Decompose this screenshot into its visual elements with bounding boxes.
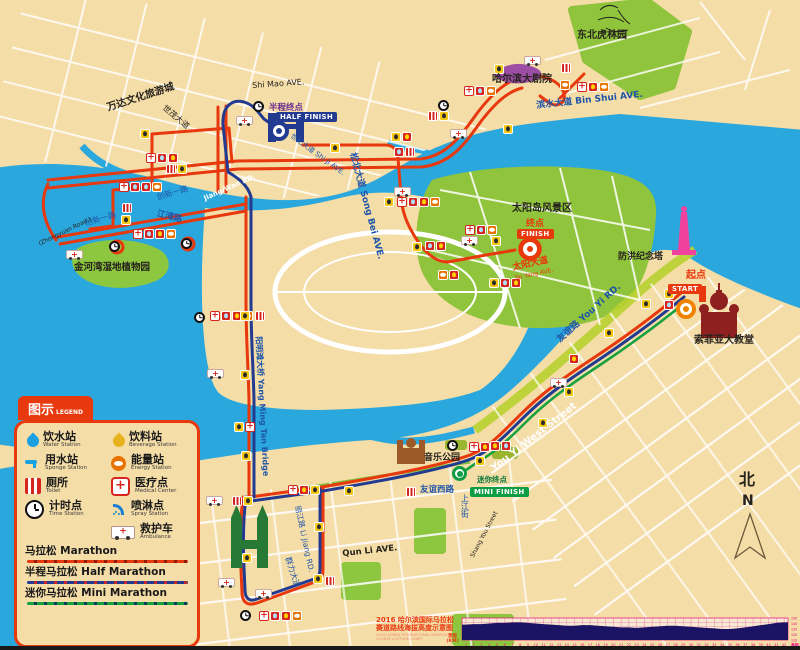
route-label-en: Mini Marathon xyxy=(81,587,167,599)
compass-north-en: N xyxy=(742,494,754,509)
route-label-cn: 马拉松 xyxy=(25,545,57,557)
toilet-icon xyxy=(406,487,416,497)
sponge-station-icon xyxy=(412,242,422,252)
water-station-icon xyxy=(270,611,280,621)
map-label-youyi-west-rd: 友谊西路 xyxy=(420,486,454,495)
sponge-station-icon xyxy=(489,278,499,288)
sponge-station-icon xyxy=(391,132,401,142)
water-station-icon xyxy=(475,86,485,96)
legend-label: 医疗点 xyxy=(135,477,176,488)
beverage-station-icon xyxy=(436,241,446,251)
ambulance-icon xyxy=(207,369,224,378)
map-label-tiger-park: 东北虎林园 xyxy=(577,31,627,42)
energy-icon xyxy=(111,456,126,471)
music-park-building xyxy=(397,438,425,464)
station-icons xyxy=(384,197,395,207)
park-block xyxy=(414,508,446,554)
station-icons xyxy=(428,111,450,121)
start-node xyxy=(676,299,696,319)
station-icons xyxy=(641,299,652,309)
beverage-station-icon xyxy=(449,270,459,280)
ambulance-icon xyxy=(550,378,567,387)
legend-sublabel: Time Station xyxy=(49,511,84,518)
ambulance-icon xyxy=(206,496,223,505)
station-icons xyxy=(464,86,497,96)
station-icons xyxy=(140,129,151,139)
station-icons xyxy=(259,611,303,621)
beverage-station-icon xyxy=(588,82,598,92)
beverage-station-icon xyxy=(299,485,309,495)
beverage-station-icon xyxy=(569,354,579,364)
water-station-icon xyxy=(157,153,167,163)
water-station-icon xyxy=(130,182,140,192)
medical-icon xyxy=(397,197,407,207)
sponge-station-icon xyxy=(242,553,252,563)
legend-item-time: 计时点Time Station xyxy=(25,498,109,520)
station-icons xyxy=(232,496,254,506)
station-icons xyxy=(313,574,324,584)
medical-icon xyxy=(210,311,220,321)
station-icons xyxy=(465,225,498,235)
station-icons xyxy=(119,182,163,192)
medical-icon xyxy=(146,153,156,163)
energy-station-icon xyxy=(430,197,440,207)
station-icons xyxy=(569,354,580,364)
svg-text:150: 150 xyxy=(791,617,797,621)
sponge-station-icon xyxy=(234,422,244,432)
energy-station-icon xyxy=(486,86,496,96)
compass-north-cn: 北 xyxy=(739,472,755,489)
water-station-icon xyxy=(141,182,151,192)
station-icons xyxy=(121,215,132,225)
ambulance-icon xyxy=(394,187,411,196)
sponge-station-icon xyxy=(177,164,187,174)
legend-label: 救护车 xyxy=(140,523,173,534)
legend-sublabel: Water Station xyxy=(43,442,81,449)
ambulance-icon xyxy=(218,578,235,587)
map-label-sophia-cathedral: 索菲亚大教堂 xyxy=(694,336,754,347)
finish-banner: FINISH xyxy=(517,229,554,239)
legend-sublabel: Beverage Station xyxy=(129,442,177,449)
beverage-station-icon xyxy=(402,132,412,142)
medical-icon xyxy=(119,182,129,192)
time-station-icon xyxy=(194,312,205,323)
energy-station-icon xyxy=(166,229,176,239)
toilet-icon xyxy=(405,147,415,157)
legend-panel: 图示LEGEND 饮水站Water Station 饮料站Beverage St… xyxy=(14,396,200,648)
station-icons xyxy=(447,440,459,451)
beverage-station-icon xyxy=(490,441,500,451)
station-icons xyxy=(218,578,236,587)
station-icons xyxy=(391,132,413,142)
legend-title-cn: 图示 xyxy=(28,403,54,418)
marathon-line xyxy=(27,560,188,564)
park-block xyxy=(341,562,381,600)
water-station-icon xyxy=(221,311,231,321)
water-station-icon xyxy=(394,147,404,157)
station-icons xyxy=(146,153,179,163)
legend-label: 厕所 xyxy=(46,477,68,488)
sponge-station-icon xyxy=(604,328,614,338)
energy-station-icon xyxy=(599,82,609,92)
legend-label: 计时点 xyxy=(49,500,84,511)
half-finish-banner: HALF FINISH xyxy=(276,112,337,122)
mini-finish-banner: MINI FINISH xyxy=(470,487,529,497)
energy-station-icon xyxy=(560,80,570,90)
medical-icon xyxy=(469,442,479,452)
station-icons xyxy=(242,553,253,563)
station-icons xyxy=(240,311,251,321)
toilet-icon xyxy=(255,311,265,321)
station-icons xyxy=(475,456,486,466)
sponge-station-icon xyxy=(314,522,324,532)
svg-text:140: 140 xyxy=(791,622,797,626)
station-icons xyxy=(491,236,502,246)
station-icons xyxy=(253,101,265,112)
ambulance-icon xyxy=(450,129,467,138)
legend-item-ambulance: 救护车Ambulance xyxy=(111,521,190,543)
sponge-station-icon xyxy=(121,215,131,225)
station-icons xyxy=(66,250,84,259)
bottom-border-bar xyxy=(0,646,800,650)
legend-item-medical: 医疗点Medical Center xyxy=(111,475,190,497)
station-icons xyxy=(604,328,615,338)
svg-text:110: 110 xyxy=(791,639,797,643)
legend-label: 饮料站 xyxy=(129,431,177,442)
legend-label: 饮水站 xyxy=(43,431,81,442)
water-station-icon xyxy=(476,225,486,235)
chart-x-axis-label: 里程 (KM) xyxy=(444,634,461,645)
clock-icon xyxy=(25,500,44,519)
water-station-icon xyxy=(425,241,435,251)
water-station-icon xyxy=(144,229,154,239)
legend-label: 喷淋点 xyxy=(131,500,168,511)
sponge-station-icon xyxy=(330,143,340,153)
station-icons xyxy=(438,100,450,111)
station-icons xyxy=(550,378,568,387)
medical-icon xyxy=(245,422,255,432)
station-icons xyxy=(122,203,133,213)
faucet-icon xyxy=(25,457,40,470)
marathon-course-map: 东北虎林园 哈尔滨大剧院 滨水大道 Bin Shui AVE. Shi Mao … xyxy=(0,0,800,650)
sponge-station-icon xyxy=(641,299,651,309)
medical-icon xyxy=(259,611,269,621)
station-icons xyxy=(166,164,188,174)
station-icons xyxy=(450,129,468,138)
sponge-station-icon xyxy=(503,124,513,134)
legend-route-marathon: 马拉松 Marathon xyxy=(25,545,190,563)
station-icons xyxy=(425,241,447,251)
toilet-icon xyxy=(166,164,176,174)
map-label-flood-monument: 防洪纪念塔 xyxy=(618,253,663,262)
toilet-icon xyxy=(561,63,571,73)
beverage-station-icon xyxy=(155,229,165,239)
time-station-icon xyxy=(447,440,458,451)
station-icons xyxy=(461,236,479,245)
medical-icon xyxy=(111,477,130,496)
station-icons xyxy=(109,241,121,252)
station-icons xyxy=(469,442,491,452)
legend-route-half: 半程马拉松 Half Marathon xyxy=(25,566,190,584)
time-station-icon xyxy=(253,101,264,112)
station-icons xyxy=(412,242,423,252)
sponge-station-icon xyxy=(310,485,320,495)
station-icons xyxy=(394,147,416,157)
station-icons xyxy=(236,116,254,125)
legend-item-toilet: 厕所Toilet xyxy=(25,475,109,497)
station-icons xyxy=(241,451,252,461)
map-label-mini-finish: 迷你终点 xyxy=(477,476,507,484)
station-icons xyxy=(325,576,336,586)
station-icons xyxy=(438,270,460,280)
energy-station-icon xyxy=(487,225,497,235)
toilet-icon xyxy=(428,111,438,121)
legend-label: 能量站 xyxy=(131,454,172,465)
energy-station-icon xyxy=(292,611,302,621)
station-icons xyxy=(577,82,610,92)
beverage-drop-icon xyxy=(111,433,128,450)
water-station-icon xyxy=(664,300,674,310)
legend-item-spray: 喷淋点Spray Station xyxy=(111,498,190,520)
sponge-station-icon xyxy=(313,574,323,584)
sponge-station-icon xyxy=(475,456,485,466)
station-icons xyxy=(288,485,321,495)
beverage-station-icon xyxy=(419,197,429,207)
station-icons xyxy=(394,187,412,196)
station-icons xyxy=(494,64,505,74)
route-label-en: Marathon xyxy=(60,545,117,557)
station-icons xyxy=(194,312,206,323)
medical-icon xyxy=(133,229,143,239)
toilet-icon xyxy=(122,203,132,213)
sponge-station-icon xyxy=(240,311,250,321)
time-station-icon xyxy=(438,100,449,111)
water-drop-icon xyxy=(25,433,42,450)
toilet-icon xyxy=(232,496,242,506)
beverage-station-icon xyxy=(168,153,178,163)
station-icons xyxy=(234,422,256,432)
sponge-station-icon xyxy=(494,64,504,74)
route-label-cn: 半程马拉松 xyxy=(25,566,78,578)
map-label-start: 起点 xyxy=(686,271,706,282)
map-label-shangjiang-street: 上江街 xyxy=(460,494,468,518)
beverage-station-icon xyxy=(480,442,490,452)
medical-icon xyxy=(288,485,298,495)
station-icons xyxy=(406,487,417,497)
sponge-station-icon xyxy=(384,197,394,207)
time-station-icon xyxy=(181,238,192,249)
station-icons xyxy=(240,370,251,380)
chart-subtitle-cn: 赛道路线海拔高度示意图 xyxy=(376,624,456,632)
medical-icon xyxy=(577,82,587,92)
half-finish-node xyxy=(269,121,289,141)
station-icons xyxy=(255,311,266,321)
sponge-station-icon xyxy=(243,496,253,506)
sponge-station-icon xyxy=(240,370,250,380)
route-label-cn: 迷你马拉松 xyxy=(25,587,78,599)
route-label-en: Half Marathon xyxy=(81,566,166,578)
start-banner: START xyxy=(668,284,702,294)
mini-marathon-line xyxy=(27,602,188,606)
time-station-icon xyxy=(240,610,251,621)
map-label-jinhewan-garden: 金河湾湿地植物园 xyxy=(74,263,150,273)
time-station-icon xyxy=(109,241,120,252)
station-icons xyxy=(564,387,575,397)
sponge-station-icon xyxy=(140,129,150,139)
station-icons xyxy=(255,589,273,598)
energy-station-icon xyxy=(438,270,448,280)
station-icons xyxy=(524,56,542,65)
station-icons xyxy=(314,522,325,532)
beverage-station-icon xyxy=(281,611,291,621)
ambulance-icon xyxy=(255,589,272,598)
ambulance-icon xyxy=(461,236,478,245)
station-icons xyxy=(133,229,177,239)
station-icons xyxy=(206,496,224,505)
station-icons xyxy=(181,238,193,249)
ambulance-icon xyxy=(524,56,541,65)
toilet-icon xyxy=(25,478,41,494)
legend-sublabel: Energy Station xyxy=(131,465,172,472)
legend-title: 图示LEGEND xyxy=(18,396,93,420)
station-icons xyxy=(207,369,225,378)
legend-item-beverage: 饮料站Beverage Station xyxy=(111,429,190,451)
ambulance-icon xyxy=(236,116,253,125)
medical-icon xyxy=(464,86,474,96)
legend-body: 饮水站Water Station 饮料站Beverage Station 用水站… xyxy=(14,420,200,648)
station-icons xyxy=(560,80,571,90)
legend-sublabel: Spray Station xyxy=(131,511,168,518)
station-icons xyxy=(240,610,252,621)
half-marathon-line xyxy=(27,581,188,585)
map-label-sun-island: 太阳岛风景区 xyxy=(512,204,572,215)
map-label-music-park: 音乐公园 xyxy=(424,454,460,463)
legend-label: 用水站 xyxy=(45,454,87,465)
water-station-icon xyxy=(500,278,510,288)
station-icons xyxy=(344,486,355,496)
legend-item-sponge: 用水站Sponge Station xyxy=(25,452,109,474)
legend-title-en: LEGEND xyxy=(56,409,83,416)
sponge-station-icon xyxy=(241,451,251,461)
sponge-station-icon xyxy=(564,387,574,397)
finish-node xyxy=(519,238,541,260)
map-label-grand-theatre: 哈尔滨大剧院 xyxy=(492,75,552,86)
svg-text:120: 120 xyxy=(791,633,797,637)
ambulance-icon xyxy=(111,526,135,539)
legend-sublabel: Medical Center xyxy=(135,488,176,495)
spray-icon xyxy=(111,502,126,516)
legend-sublabel: Ambulance xyxy=(140,534,173,541)
legend-item-energy: 能量站Energy Station xyxy=(111,452,190,474)
water-station-icon xyxy=(408,197,418,207)
station-icons xyxy=(561,63,572,73)
sponge-station-icon xyxy=(439,111,449,121)
legend-sublabel: Sponge Station xyxy=(45,465,87,472)
station-icons xyxy=(397,197,441,207)
station-icons xyxy=(664,300,675,310)
station-icons xyxy=(330,143,341,153)
legend-item-water: 饮水站Water Station xyxy=(25,429,109,451)
mini-finish-node xyxy=(452,466,467,481)
ambulance-icon xyxy=(66,250,83,259)
svg-text:130: 130 xyxy=(791,628,797,632)
legend-sublabel: Toilet xyxy=(46,488,68,495)
legend-spacer xyxy=(25,521,109,543)
toilet-icon xyxy=(325,576,335,586)
legend-route-mini: 迷你马拉松 Mini Marathon xyxy=(25,587,190,605)
medical-icon xyxy=(465,225,475,235)
sponge-station-icon xyxy=(344,486,354,496)
station-icons xyxy=(503,124,514,134)
sponge-station-icon xyxy=(491,236,501,246)
